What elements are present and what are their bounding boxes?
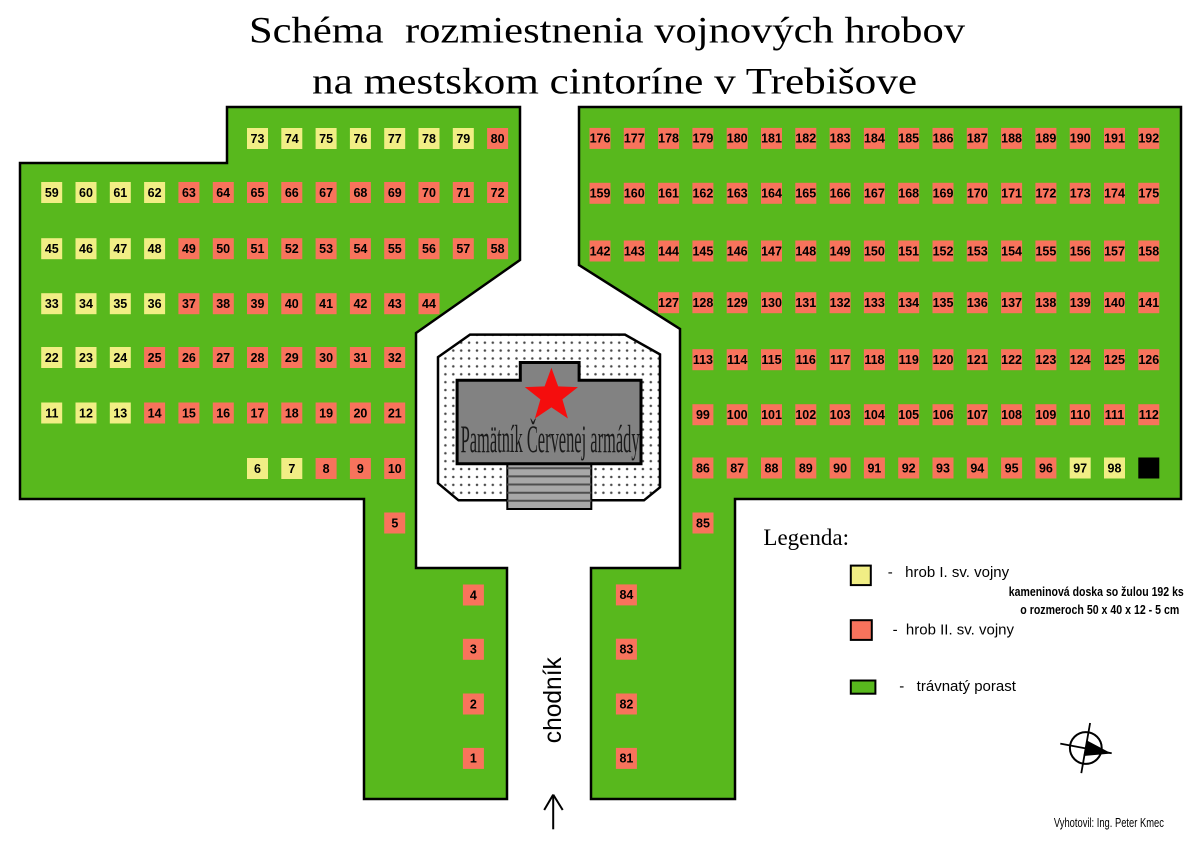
svg-text:19: 19 — [319, 406, 333, 420]
svg-text:22: 22 — [45, 351, 59, 365]
svg-text:151: 151 — [898, 244, 919, 258]
svg-text:23: 23 — [79, 351, 93, 365]
svg-text:52: 52 — [285, 242, 299, 256]
svg-text:87: 87 — [730, 461, 744, 475]
svg-text:155: 155 — [1035, 244, 1056, 258]
svg-text:85: 85 — [696, 516, 710, 530]
svg-text:95: 95 — [1005, 461, 1019, 475]
svg-text:17: 17 — [251, 406, 265, 420]
svg-text:35: 35 — [113, 297, 127, 311]
svg-text:Pamätník Červenej armády: Pamätník Červenej armády — [461, 417, 640, 461]
svg-text:139: 139 — [1070, 296, 1091, 310]
svg-text:13: 13 — [113, 406, 127, 420]
svg-text:40: 40 — [285, 297, 299, 311]
svg-text:130: 130 — [761, 296, 782, 310]
svg-text:157: 157 — [1104, 244, 1125, 258]
svg-text:186: 186 — [933, 132, 954, 146]
svg-text:31: 31 — [353, 351, 367, 365]
svg-text:57: 57 — [456, 242, 470, 256]
svg-text:174: 174 — [1104, 187, 1125, 201]
svg-text:176: 176 — [590, 132, 611, 146]
svg-text:na mestskom cintoríne v Trebiš: na mestskom cintoríne v Trebišove — [312, 62, 917, 103]
svg-text:32: 32 — [388, 351, 402, 365]
svg-text:162: 162 — [692, 187, 713, 201]
svg-text:64: 64 — [216, 186, 230, 200]
svg-text:92: 92 — [902, 461, 916, 475]
svg-text:91: 91 — [867, 461, 881, 475]
svg-text:18: 18 — [285, 406, 299, 420]
svg-text:80: 80 — [491, 132, 505, 146]
svg-text:kameninová doska so žulou 192: kameninová doska so žulou 192 ks — [1009, 585, 1184, 599]
svg-text:6: 6 — [254, 462, 261, 476]
svg-text:188: 188 — [1001, 132, 1022, 146]
svg-text:137: 137 — [1001, 296, 1022, 310]
svg-text:148: 148 — [795, 244, 816, 258]
svg-text:42: 42 — [353, 297, 367, 311]
svg-text:175: 175 — [1138, 187, 1159, 201]
svg-text:63: 63 — [182, 186, 196, 200]
svg-text:27: 27 — [216, 351, 230, 365]
svg-text:55: 55 — [388, 242, 402, 256]
svg-text:o rozmeroch 50 x 40 x 12 - 5 c: o rozmeroch 50 x 40 x 12 - 5 cm — [1020, 603, 1179, 617]
svg-text:138: 138 — [1035, 296, 1056, 310]
svg-text:131: 131 — [795, 296, 816, 310]
svg-text:183: 183 — [830, 132, 851, 146]
svg-text:79: 79 — [456, 132, 470, 146]
svg-text:10: 10 — [388, 462, 402, 476]
svg-text:103: 103 — [830, 408, 851, 422]
svg-text:77: 77 — [388, 132, 402, 146]
svg-text:88: 88 — [765, 461, 779, 475]
svg-text:126: 126 — [1138, 353, 1159, 367]
svg-text:150: 150 — [864, 244, 885, 258]
svg-text:166: 166 — [830, 187, 851, 201]
svg-text:134: 134 — [898, 296, 919, 310]
svg-text:180: 180 — [727, 132, 748, 146]
svg-text:26: 26 — [182, 351, 196, 365]
svg-text:147: 147 — [761, 244, 782, 258]
svg-text:38: 38 — [216, 297, 230, 311]
svg-text:5: 5 — [391, 516, 398, 530]
svg-text:169: 169 — [933, 187, 954, 201]
svg-text:118: 118 — [864, 353, 884, 367]
svg-text:2: 2 — [470, 697, 477, 711]
svg-text:108: 108 — [1001, 408, 1022, 422]
svg-text:37: 37 — [182, 297, 196, 311]
svg-text:66: 66 — [285, 186, 299, 200]
svg-text:72: 72 — [491, 186, 505, 200]
svg-text:113: 113 — [693, 353, 713, 367]
svg-text:187: 187 — [967, 132, 988, 146]
svg-text:90: 90 — [833, 461, 847, 475]
svg-text:182: 182 — [795, 132, 816, 146]
svg-text:100: 100 — [727, 408, 748, 422]
svg-text:84: 84 — [619, 588, 633, 602]
svg-text:99: 99 — [696, 408, 710, 422]
svg-text:16: 16 — [216, 406, 230, 420]
svg-text:34: 34 — [79, 297, 93, 311]
svg-text:- trávnatý porast: - trávnatý porast — [899, 678, 1017, 695]
svg-text:93: 93 — [936, 461, 950, 475]
svg-text:97: 97 — [1073, 461, 1087, 475]
svg-text:163: 163 — [727, 187, 748, 201]
svg-text:125: 125 — [1104, 353, 1125, 367]
svg-text:140: 140 — [1104, 296, 1125, 310]
svg-text:24: 24 — [113, 351, 127, 365]
svg-text:107: 107 — [967, 408, 988, 422]
svg-text:3: 3 — [470, 643, 477, 657]
svg-text:124: 124 — [1070, 353, 1091, 367]
svg-text:105: 105 — [898, 408, 919, 422]
svg-text:143: 143 — [624, 244, 645, 258]
svg-text:59: 59 — [45, 186, 59, 200]
svg-text:181: 181 — [761, 132, 782, 146]
svg-text:104: 104 — [864, 408, 885, 422]
svg-text:48: 48 — [148, 242, 162, 256]
svg-text:160: 160 — [624, 187, 645, 201]
svg-text:Schéma rozmiestnenia vojnovýc: Schéma rozmiestnenia vojnových hrobov — [249, 10, 966, 51]
svg-text:83: 83 — [619, 643, 633, 657]
svg-text:111: 111 — [1105, 408, 1125, 422]
svg-text:54: 54 — [353, 242, 367, 256]
svg-text:71: 71 — [456, 186, 470, 200]
svg-text:30: 30 — [319, 351, 333, 365]
svg-text:39: 39 — [251, 297, 265, 311]
svg-text:154: 154 — [1001, 244, 1022, 258]
svg-text:68: 68 — [353, 186, 367, 200]
svg-text:21: 21 — [388, 406, 402, 420]
svg-text:120: 120 — [933, 353, 954, 367]
svg-text:149: 149 — [830, 244, 851, 258]
svg-text:191: 191 — [1104, 132, 1125, 146]
svg-text:29: 29 — [285, 351, 299, 365]
svg-text:114: 114 — [727, 353, 747, 367]
svg-text:8: 8 — [323, 462, 330, 476]
svg-text:106: 106 — [933, 408, 954, 422]
svg-text:141: 141 — [1138, 296, 1159, 310]
svg-text:- hrob II. sv. vojny: - hrob II. sv. vojny — [893, 622, 1015, 639]
svg-text:102: 102 — [795, 408, 816, 422]
svg-text:159: 159 — [590, 187, 611, 201]
svg-text:81: 81 — [619, 752, 633, 766]
svg-text:152: 152 — [933, 244, 954, 258]
svg-text:70: 70 — [422, 186, 436, 200]
svg-text:49: 49 — [182, 242, 196, 256]
svg-text:74: 74 — [285, 132, 299, 146]
svg-text:Legenda:: Legenda: — [763, 525, 849, 550]
svg-text:170: 170 — [967, 187, 988, 201]
svg-text:161: 161 — [658, 187, 679, 201]
svg-text:116: 116 — [796, 353, 816, 367]
svg-text:142: 142 — [590, 244, 611, 258]
svg-text:110: 110 — [1070, 408, 1090, 422]
svg-text:53: 53 — [319, 242, 333, 256]
svg-text:43: 43 — [388, 297, 402, 311]
svg-text:12: 12 — [79, 406, 93, 420]
svg-text:41: 41 — [319, 297, 333, 311]
svg-text:56: 56 — [422, 242, 436, 256]
svg-text:145: 145 — [692, 244, 713, 258]
svg-text:119: 119 — [899, 353, 919, 367]
svg-text:9: 9 — [357, 462, 364, 476]
svg-text:61: 61 — [113, 186, 127, 200]
svg-text:15: 15 — [182, 406, 196, 420]
svg-text:190: 190 — [1070, 132, 1091, 146]
svg-text:86: 86 — [696, 461, 710, 475]
svg-text:173: 173 — [1070, 187, 1091, 201]
svg-text:chodník: chodník — [539, 657, 567, 743]
svg-text:146: 146 — [727, 244, 748, 258]
svg-text:11: 11 — [45, 406, 58, 420]
svg-text:153: 153 — [967, 244, 988, 258]
svg-text:82: 82 — [619, 697, 633, 711]
svg-text:50: 50 — [216, 242, 230, 256]
svg-text:168: 168 — [898, 187, 919, 201]
svg-text:185: 185 — [898, 132, 919, 146]
svg-text:117: 117 — [830, 353, 850, 367]
svg-text:Vyhotovil: Ing. Peter Kmec: Vyhotovil: Ing. Peter Kmec — [1054, 815, 1164, 830]
svg-text:178: 178 — [658, 132, 679, 146]
svg-text:156: 156 — [1070, 244, 1091, 258]
svg-text:65: 65 — [251, 186, 265, 200]
svg-text:115: 115 — [761, 353, 781, 367]
svg-text:112: 112 — [1139, 408, 1159, 422]
svg-text:179: 179 — [692, 132, 713, 146]
svg-text:144: 144 — [658, 244, 679, 258]
svg-text:76: 76 — [353, 132, 367, 146]
svg-text:129: 129 — [727, 296, 748, 310]
svg-text:46: 46 — [79, 242, 93, 256]
svg-text:167: 167 — [864, 187, 885, 201]
svg-text:101: 101 — [761, 408, 782, 422]
svg-text:164: 164 — [761, 187, 782, 201]
svg-text:75: 75 — [319, 132, 333, 146]
svg-text:58: 58 — [491, 242, 505, 256]
svg-text:184: 184 — [864, 132, 885, 146]
svg-text:96: 96 — [1039, 461, 1053, 475]
svg-text:51: 51 — [251, 242, 265, 256]
svg-text:128: 128 — [692, 296, 713, 310]
svg-text:135: 135 — [933, 296, 954, 310]
svg-text:78: 78 — [422, 132, 436, 146]
svg-text:127: 127 — [658, 296, 679, 310]
svg-text:189: 189 — [1035, 132, 1056, 146]
svg-text:89: 89 — [799, 461, 813, 475]
svg-text:62: 62 — [148, 186, 162, 200]
svg-text:60: 60 — [79, 186, 93, 200]
svg-text:171: 171 — [1001, 187, 1022, 201]
svg-text:136: 136 — [967, 296, 988, 310]
svg-text:69: 69 — [388, 186, 402, 200]
svg-text:132: 132 — [830, 296, 851, 310]
svg-text:47: 47 — [113, 242, 127, 256]
svg-text:123: 123 — [1035, 353, 1056, 367]
svg-text:67: 67 — [319, 186, 333, 200]
svg-text:94: 94 — [970, 461, 984, 475]
svg-text:73: 73 — [251, 132, 265, 146]
svg-text:158: 158 — [1138, 244, 1159, 258]
svg-text:177: 177 — [624, 132, 645, 146]
svg-text:172: 172 — [1035, 187, 1056, 201]
svg-text:25: 25 — [148, 351, 162, 365]
svg-text:165: 165 — [795, 187, 816, 201]
svg-text:1: 1 — [470, 752, 477, 766]
svg-text:192: 192 — [1138, 132, 1159, 146]
svg-text:122: 122 — [1001, 353, 1022, 367]
svg-text:109: 109 — [1035, 408, 1056, 422]
svg-text:121: 121 — [967, 353, 988, 367]
svg-text:44: 44 — [422, 297, 436, 311]
svg-text:98: 98 — [1108, 461, 1122, 475]
svg-text:4: 4 — [470, 588, 477, 602]
svg-text:- hrob I. sv. vojny: - hrob I. sv. vojny — [888, 564, 1010, 581]
svg-text:36: 36 — [148, 297, 162, 311]
svg-text:7: 7 — [288, 462, 295, 476]
svg-text:133: 133 — [864, 296, 885, 310]
svg-text:33: 33 — [45, 297, 59, 311]
svg-text:20: 20 — [353, 406, 367, 420]
svg-text:45: 45 — [45, 242, 59, 256]
svg-text:28: 28 — [251, 351, 265, 365]
svg-text:14: 14 — [148, 406, 162, 420]
